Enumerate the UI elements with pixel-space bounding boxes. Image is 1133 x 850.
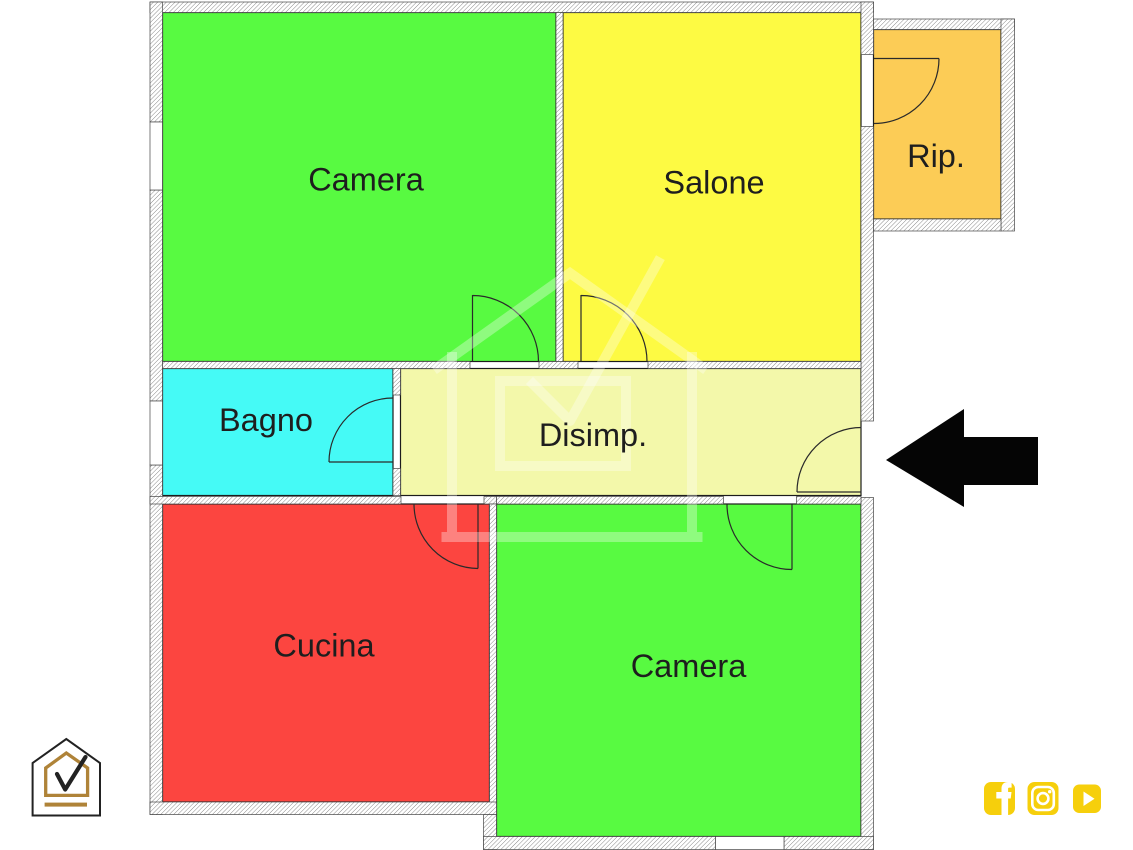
svg-text:Salone: Salone bbox=[663, 165, 764, 201]
svg-text:Rip.: Rip. bbox=[907, 138, 965, 174]
svg-text:Camera: Camera bbox=[631, 648, 748, 684]
svg-text:Disimp.: Disimp. bbox=[539, 417, 647, 453]
svg-text:Cucina: Cucina bbox=[273, 628, 375, 664]
svg-text:Bagno: Bagno bbox=[219, 402, 313, 438]
svg-text:Camera: Camera bbox=[308, 162, 425, 198]
